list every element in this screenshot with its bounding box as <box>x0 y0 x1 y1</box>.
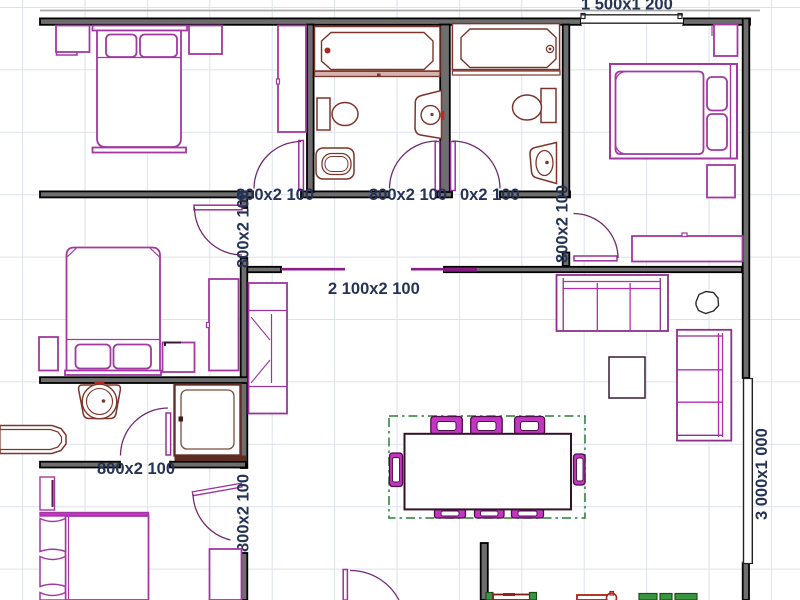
svg-text:800x2 100: 800x2 100 <box>554 185 572 263</box>
svg-text:800x2 100: 800x2 100 <box>97 460 175 478</box>
svg-text:800x2 100: 800x2 100 <box>369 186 447 204</box>
svg-text:2 100x2 100: 2 100x2 100 <box>328 280 420 298</box>
svg-text:0x2 100: 0x2 100 <box>460 186 520 204</box>
svg-text:1 500x1 200: 1 500x1 200 <box>581 0 673 14</box>
svg-text:800x2 100: 800x2 100 <box>235 190 253 268</box>
svg-text:3 000x1 000: 3 000x1 000 <box>753 428 771 520</box>
svg-text:800x2 100: 800x2 100 <box>235 474 253 552</box>
